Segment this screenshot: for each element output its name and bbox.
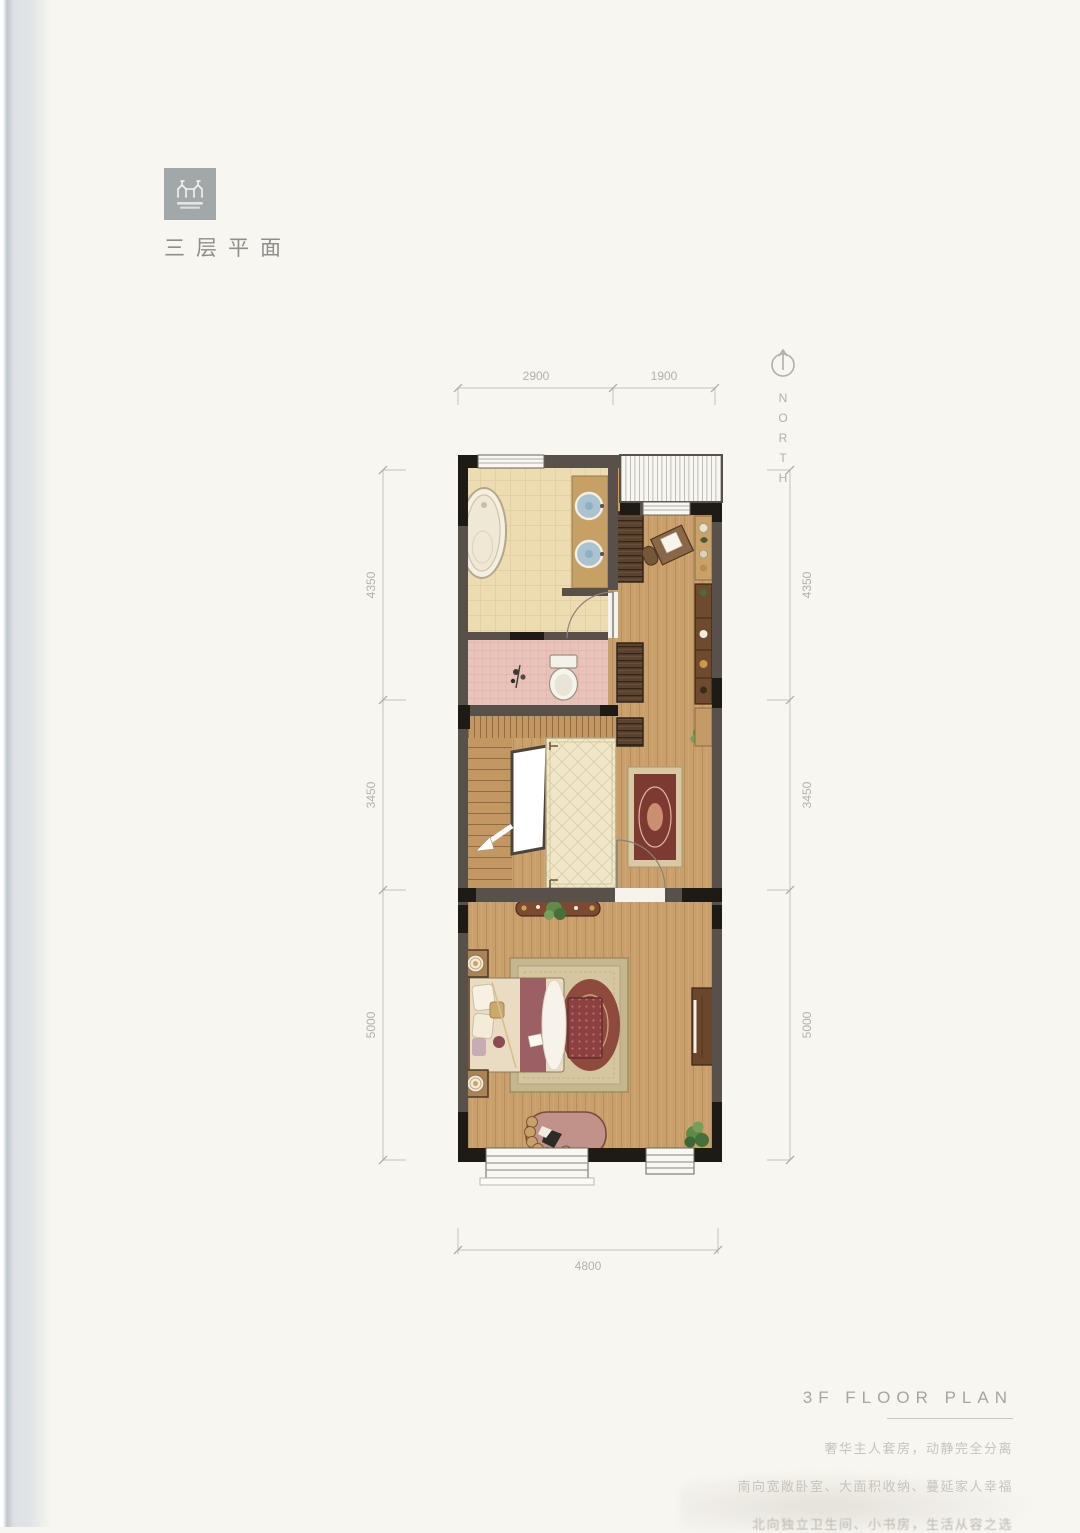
- dim-right-5000: 5000: [800, 1012, 814, 1039]
- stair-void: [512, 746, 547, 854]
- bed-bench: [568, 998, 602, 1058]
- hall-tile: [546, 738, 616, 888]
- dim-bottom-4800: 4800: [575, 1259, 602, 1273]
- dim-top-2900: 2900: [523, 369, 550, 383]
- dim-right-3450: 3450: [800, 782, 814, 809]
- dim-left-5000: 5000: [364, 1012, 378, 1039]
- bay-window-left: [480, 1148, 594, 1185]
- footer-line-2: 南向宽敞卧室、大面积收纳、蔓延家人幸福: [593, 1476, 1013, 1495]
- bed: [463, 976, 566, 1074]
- balcony: [620, 455, 722, 502]
- footer-block: 3F FLOOR PLAN 奢华主人套房，动静完全分离 南向宽敞卧室、大面积收纳…: [593, 1388, 1013, 1533]
- vanity: [572, 476, 608, 588]
- floor-plan-heading: 3F FLOOR PLAN: [593, 1388, 1013, 1408]
- dim-left-4350: 4350: [364, 572, 378, 599]
- study-shelf: [695, 516, 712, 580]
- hall-rug: [628, 767, 682, 867]
- bay-window-right: [646, 1148, 694, 1174]
- window-top-left: [478, 455, 544, 468]
- footer-line-1: 奢华主人套房，动静完全分离: [593, 1438, 1013, 1457]
- floor-plan: [450, 450, 740, 1195]
- fur-throw: [542, 980, 566, 1070]
- footer-line-3: 北向独立卫生间、小书房，生活从容之选: [593, 1514, 1013, 1533]
- bench-right: [695, 708, 712, 746]
- toilet-icon: [550, 655, 578, 700]
- dim-right-4350: 4350: [800, 572, 814, 599]
- dim-left-3450: 3450: [364, 782, 378, 809]
- tv-screen: [694, 1000, 697, 1053]
- toilet-room-floor: [468, 640, 608, 705]
- footer-divider: [887, 1418, 1013, 1419]
- study-cabinet: [695, 584, 712, 704]
- dim-top-1900: 1900: [651, 369, 678, 383]
- bed-card: [528, 1034, 543, 1047]
- window-balcony: [643, 502, 690, 515]
- tv-cabinet: [692, 988, 713, 1065]
